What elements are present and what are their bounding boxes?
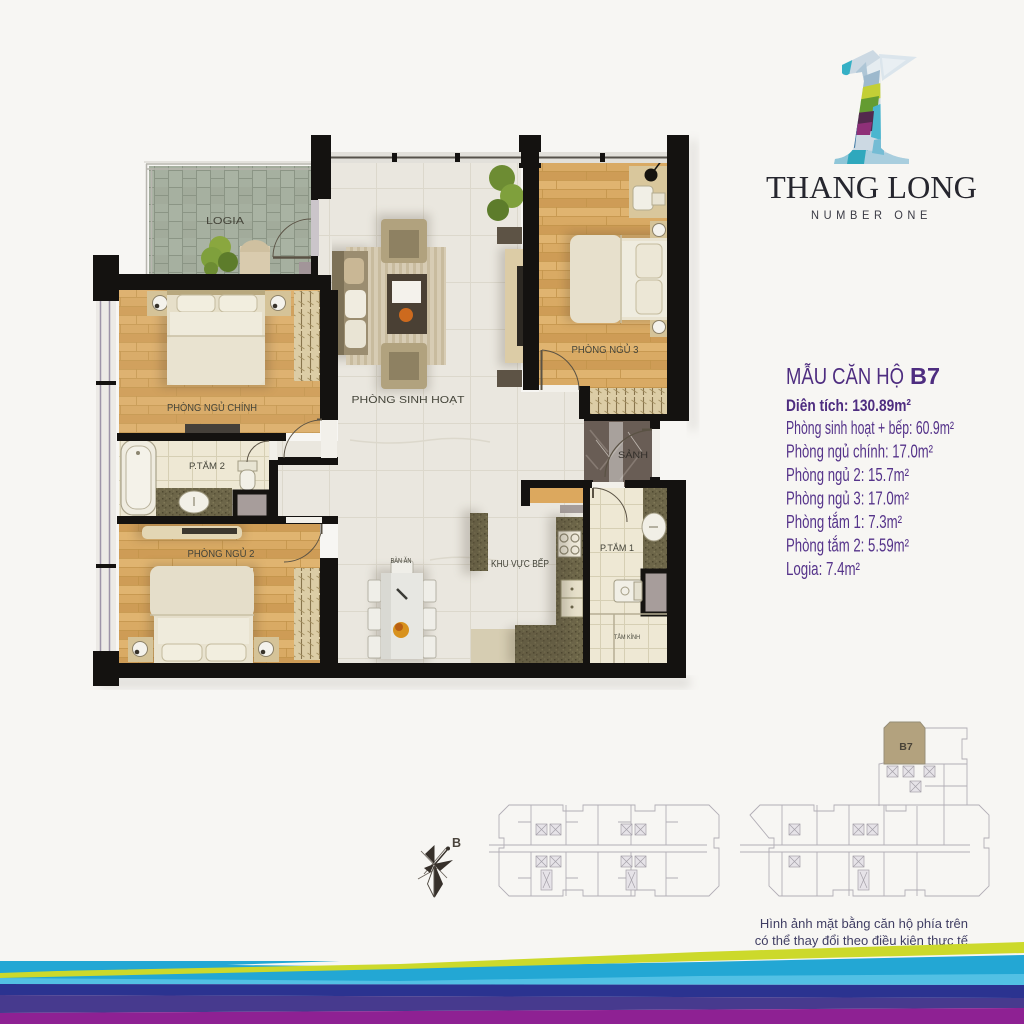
svg-text:MẪU CĂN HỘ: MẪU CĂN HỘ (786, 361, 904, 389)
svg-text:Diên tích: 130.89m²: Diên tích: 130.89m² (786, 396, 911, 415)
svg-text:Hình ảnh mặt bằng căn hộ phía: Hình ảnh mặt bằng căn hộ phía trên (760, 916, 968, 931)
svg-text:LOGIA: LOGIA (206, 216, 244, 227)
svg-text:Phòng tắm 1: 7.3m²: Phòng tắm 1: 7.3m² (786, 511, 902, 532)
svg-text:B7: B7 (910, 363, 940, 389)
svg-text:KHU VỰC BẾP: KHU VỰC BẾP (491, 557, 549, 570)
svg-text:NUMBER ONE: NUMBER ONE (811, 208, 932, 222)
svg-text:PHÒNG NGỦ CHÍNH: PHÒNG NGỦ CHÍNH (167, 401, 257, 414)
svg-text:PHÒNG NGỦ 3: PHÒNG NGỦ 3 (572, 343, 639, 356)
svg-text:B: B (452, 836, 461, 850)
svg-text:P.TẮM 2: P.TẮM 2 (189, 461, 225, 472)
svg-text:PHÒNG SINH HOẠT: PHÒNG SINH HOẠT (352, 393, 466, 406)
svg-text:Logia: 7.4m²: Logia: 7.4m² (786, 559, 860, 579)
svg-text:P.TẮM 1: P.TẮM 1 (600, 543, 634, 554)
svg-text:THANG LONG: THANG LONG (766, 169, 977, 205)
svg-text:Phòng ngủ 3: 17.0m²: Phòng ngủ 3: 17.0m² (786, 489, 909, 509)
svg-text:Phòng tắm 2: 5.59m²: Phòng tắm 2: 5.59m² (786, 535, 909, 556)
svg-text:SẢNH: SẢNH (618, 449, 648, 461)
svg-text:Phòng ngủ chính: 17.0m²: Phòng ngủ chính: 17.0m² (786, 442, 933, 462)
svg-text:Phòng sinh hoạt + bếp: 60.9m²: Phòng sinh hoạt + bếp: 60.9m² (786, 418, 954, 438)
svg-text:BÀN ĂN: BÀN ĂN (391, 556, 412, 565)
svg-text:Phòng ngủ 2: 15.7m²: Phòng ngủ 2: 15.7m² (786, 465, 909, 485)
svg-text:PHÒNG NGỦ 2: PHÒNG NGỦ 2 (188, 547, 255, 560)
svg-text:B7: B7 (899, 741, 913, 753)
svg-text:TẮM KÍNH: TẮM KÍNH (614, 632, 640, 641)
